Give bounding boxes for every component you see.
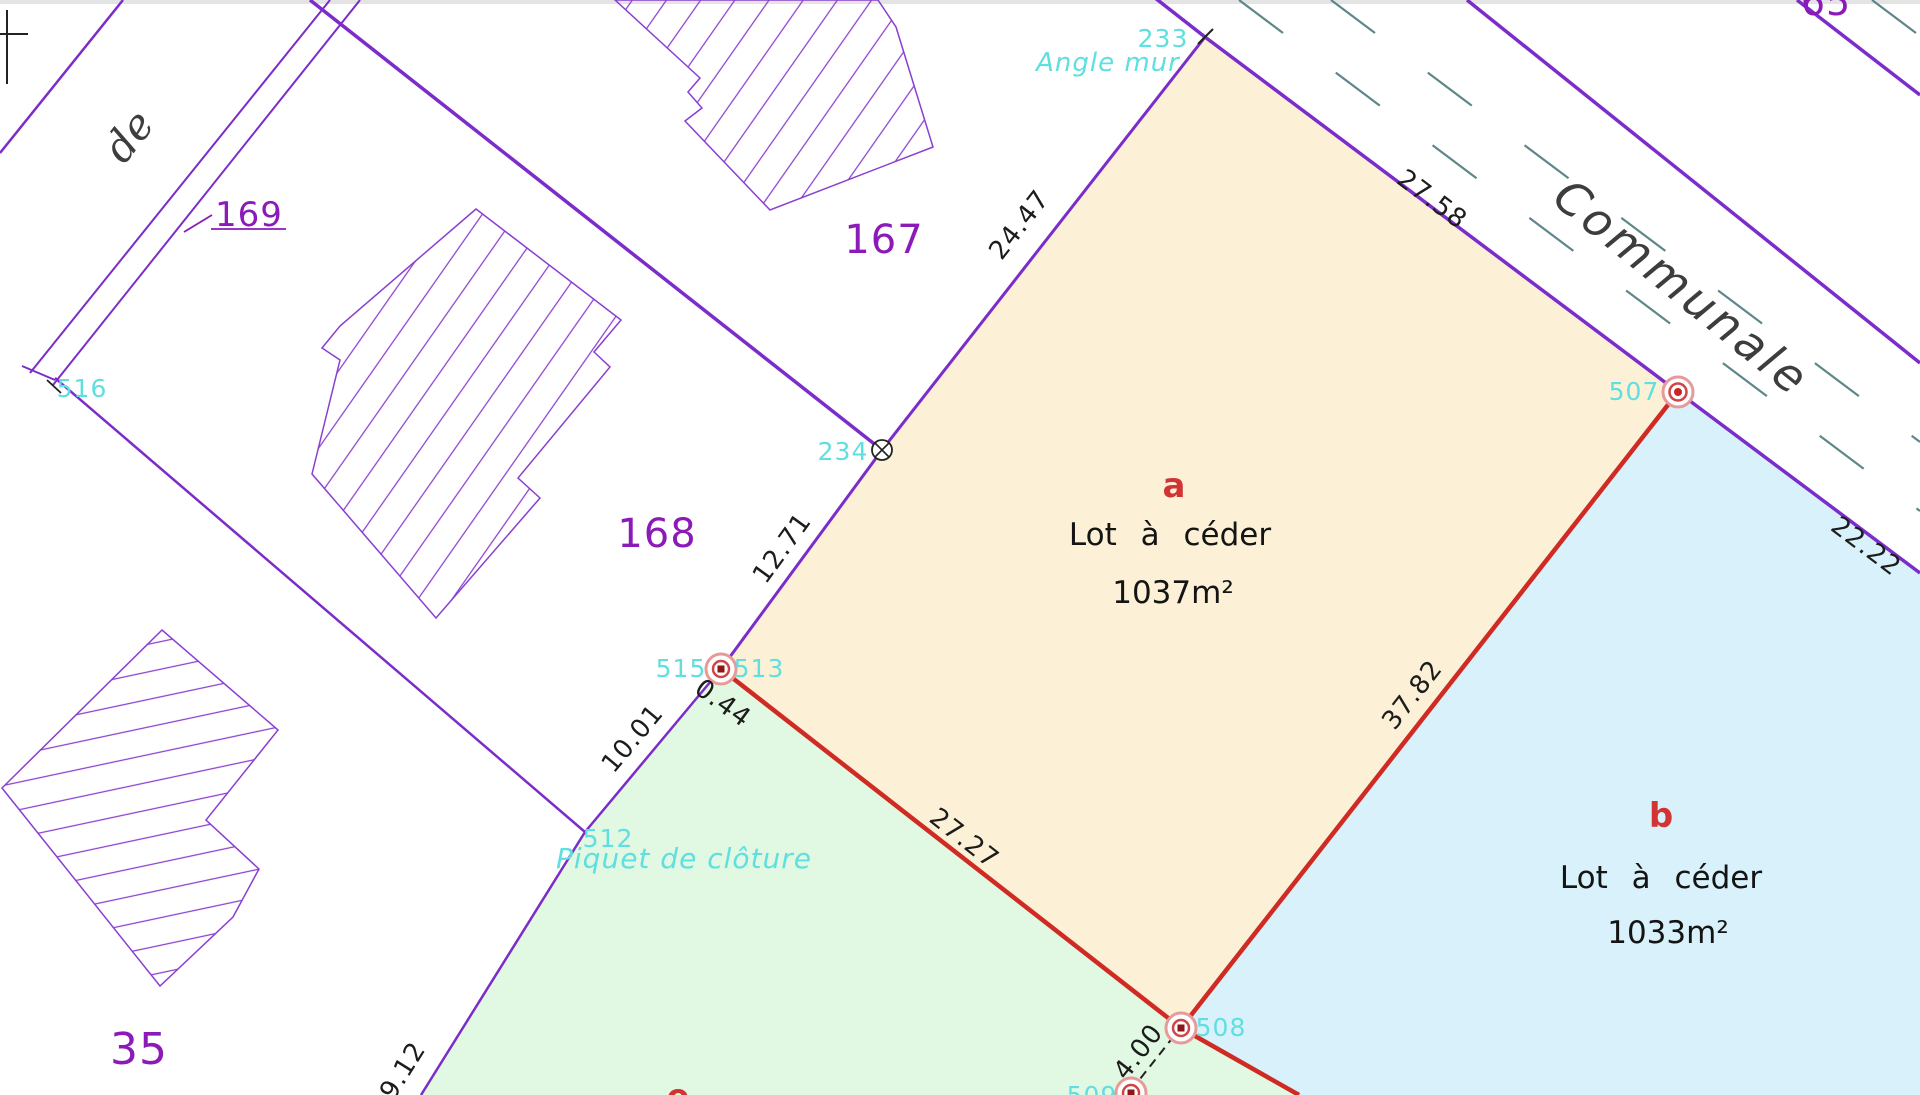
point-symbol-234 <box>872 440 892 460</box>
lot-b-letter: b <box>1649 796 1673 836</box>
lot-a-area: 1037m² <box>1112 575 1234 611</box>
lot-e-letter: e <box>666 1077 689 1095</box>
annotation-angle-mur: Angle mur <box>1034 48 1181 78</box>
annotation-piquet-cloture: Piquet de clôture <box>556 842 812 875</box>
point-label-515: 515 <box>656 654 707 683</box>
lot-a-letter: a <box>1163 466 1186 506</box>
lot-b-area: 1033m² <box>1607 915 1729 951</box>
point-symbol-507 <box>1663 377 1693 407</box>
point-label-508: 508 <box>1196 1013 1247 1042</box>
point-label-234: 234 <box>818 437 869 466</box>
lot-a-title: Lot à céder <box>1069 517 1271 553</box>
lot-b-title: Lot à céder <box>1560 860 1762 896</box>
window-top-edge <box>0 0 1920 4</box>
point-label-509: 509 <box>1067 1081 1118 1095</box>
parcel-number-168: 168 <box>617 511 696 557</box>
cadastral-plan: 169 167 168 35 65 de Communale a Lot à c… <box>0 0 1920 1095</box>
parcel-number-65: 65 <box>1801 0 1851 24</box>
parcel-number-169: 169 <box>215 195 283 235</box>
point-symbol-508 <box>1166 1013 1196 1043</box>
parcel-number-35: 35 <box>110 1024 168 1075</box>
point-label-516: 516 <box>57 374 108 403</box>
point-label-507: 507 <box>1609 377 1660 406</box>
parcel-number-167: 167 <box>844 217 923 263</box>
point-label-513: 513 <box>734 654 785 683</box>
